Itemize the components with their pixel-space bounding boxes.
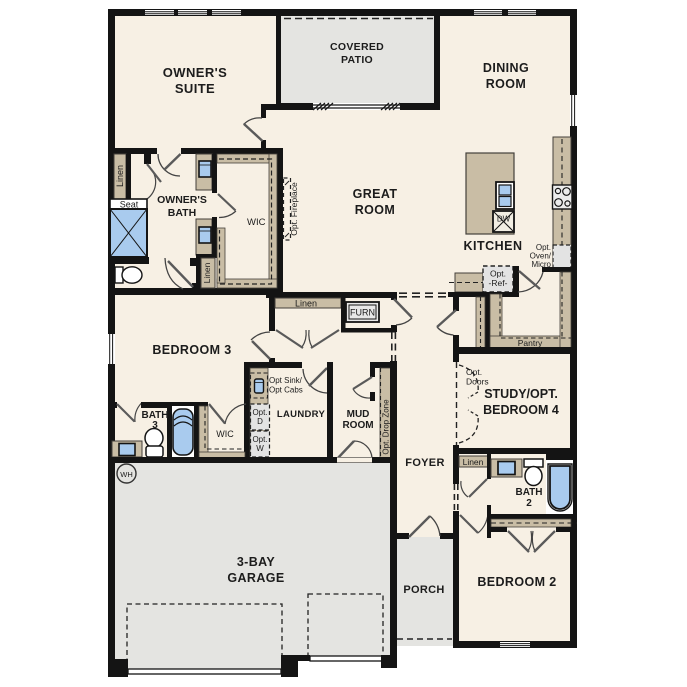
svg-text:OWNER'S: OWNER'S [157, 194, 207, 206]
svg-text:-Ref-: -Ref- [489, 278, 508, 288]
svg-text:Opt.: Opt. [252, 408, 267, 417]
svg-text:Linen: Linen [295, 299, 317, 309]
svg-text:BEDROOM 2: BEDROOM 2 [477, 575, 556, 589]
svg-text:Linen: Linen [202, 262, 212, 283]
svg-text:BATH: BATH [168, 207, 196, 219]
svg-text:Opt. Drop Zone: Opt. Drop Zone [382, 399, 391, 455]
svg-text:WIC: WIC [216, 429, 234, 439]
svg-text:Opt Cabs: Opt Cabs [269, 386, 303, 395]
svg-text:PORCH: PORCH [403, 584, 444, 596]
svg-text:Linen: Linen [463, 457, 484, 467]
svg-text:PATIO: PATIO [341, 54, 373, 66]
svg-text:WH: WH [120, 470, 133, 479]
svg-text:STUDY/OPT.: STUDY/OPT. [484, 387, 558, 401]
svg-text:ROOM: ROOM [355, 203, 396, 217]
svg-text:FURN: FURN [350, 308, 375, 318]
svg-text:Opt. Fireplace: Opt. Fireplace [289, 182, 299, 236]
svg-text:OWNER'S: OWNER'S [163, 65, 227, 80]
svg-text:SUITE: SUITE [175, 81, 215, 96]
svg-text:BEDROOM 3: BEDROOM 3 [152, 343, 231, 357]
svg-text:D: D [257, 417, 263, 426]
svg-text:GARAGE: GARAGE [227, 571, 284, 585]
svg-text:LAUNDRY: LAUNDRY [277, 409, 326, 420]
svg-text:MUD: MUD [347, 409, 370, 420]
svg-text:ROOM: ROOM [342, 420, 373, 431]
svg-text:DW: DW [497, 215, 511, 224]
svg-text:Opt.: Opt. [252, 435, 267, 444]
svg-text:COVERED: COVERED [330, 41, 384, 53]
svg-text:Pantry: Pantry [518, 338, 543, 348]
svg-text:WIC: WIC [247, 217, 266, 228]
svg-text:KITCHEN: KITCHEN [463, 239, 522, 253]
svg-text:Linen: Linen [115, 165, 125, 187]
svg-text:Opt.: Opt. [490, 269, 506, 279]
svg-text:3-BAY: 3-BAY [237, 555, 276, 569]
svg-text:DINING: DINING [483, 61, 529, 75]
svg-text:3: 3 [152, 420, 158, 431]
svg-text:Doors: Doors [466, 377, 489, 387]
svg-text:BATH: BATH [515, 487, 542, 498]
svg-text:FOYER: FOYER [405, 457, 444, 469]
svg-text:W: W [256, 444, 264, 453]
svg-text:Opt Sink/: Opt Sink/ [269, 376, 303, 385]
svg-text:Opt.: Opt. [466, 367, 482, 377]
svg-text:ROOM: ROOM [486, 77, 527, 91]
svg-text:2: 2 [526, 498, 532, 509]
svg-text:BEDROOM 4: BEDROOM 4 [483, 403, 559, 417]
svg-text:GREAT: GREAT [353, 187, 398, 201]
